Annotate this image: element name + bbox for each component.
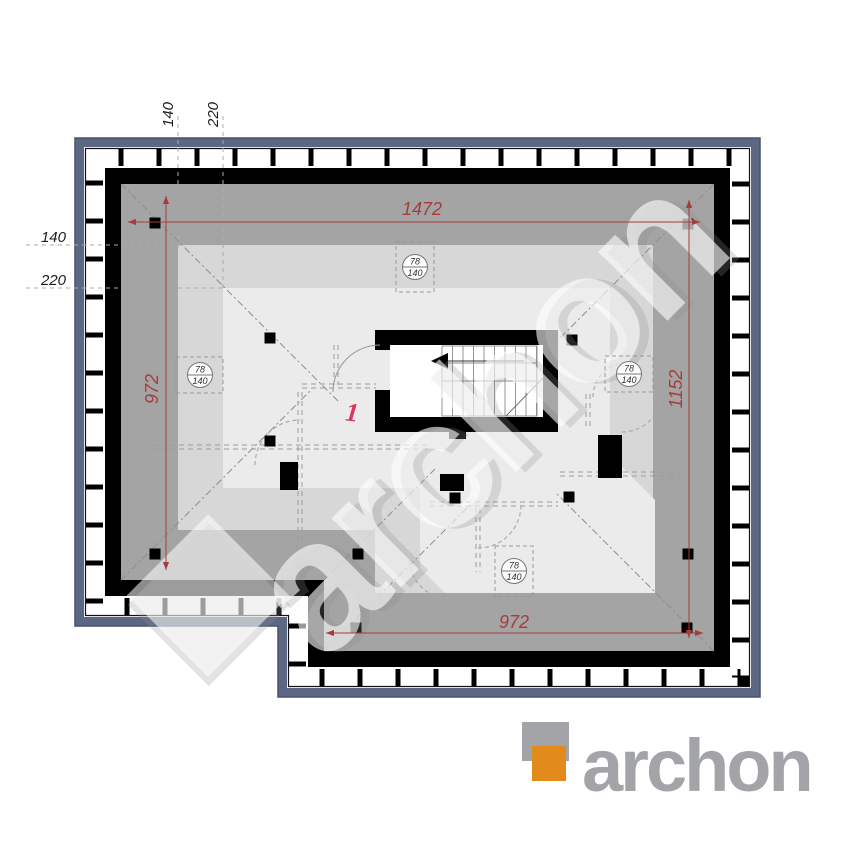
roof-window-height: 140: [506, 572, 521, 582]
roof-window-height: 140: [621, 375, 636, 385]
dim-right-label: 1152: [666, 370, 686, 409]
roof-window-height: 140: [407, 268, 422, 278]
dim-bottom-label: 972: [499, 612, 529, 632]
dim-left-label: 972: [142, 374, 162, 404]
attic-floor-plan: archon archon 1472 972 1152 972 140 220 …: [0, 0, 853, 853]
height-140-top-label: 140: [160, 101, 177, 127]
height-140-left-label: 140: [41, 229, 67, 246]
roof-window-width: 78: [195, 365, 205, 375]
height-220-left-label: 220: [40, 272, 67, 289]
roof-window-width: 78: [410, 257, 420, 267]
roof-window-width: 78: [509, 561, 519, 571]
roof-window-height: 140: [192, 376, 207, 386]
dim-top-label: 1472: [402, 199, 442, 219]
logo-square-orange: [532, 746, 566, 781]
roof-window-width: 78: [624, 364, 634, 374]
logo-wordmark: archon: [582, 724, 811, 807]
height-220-top-label: 220: [205, 101, 222, 128]
